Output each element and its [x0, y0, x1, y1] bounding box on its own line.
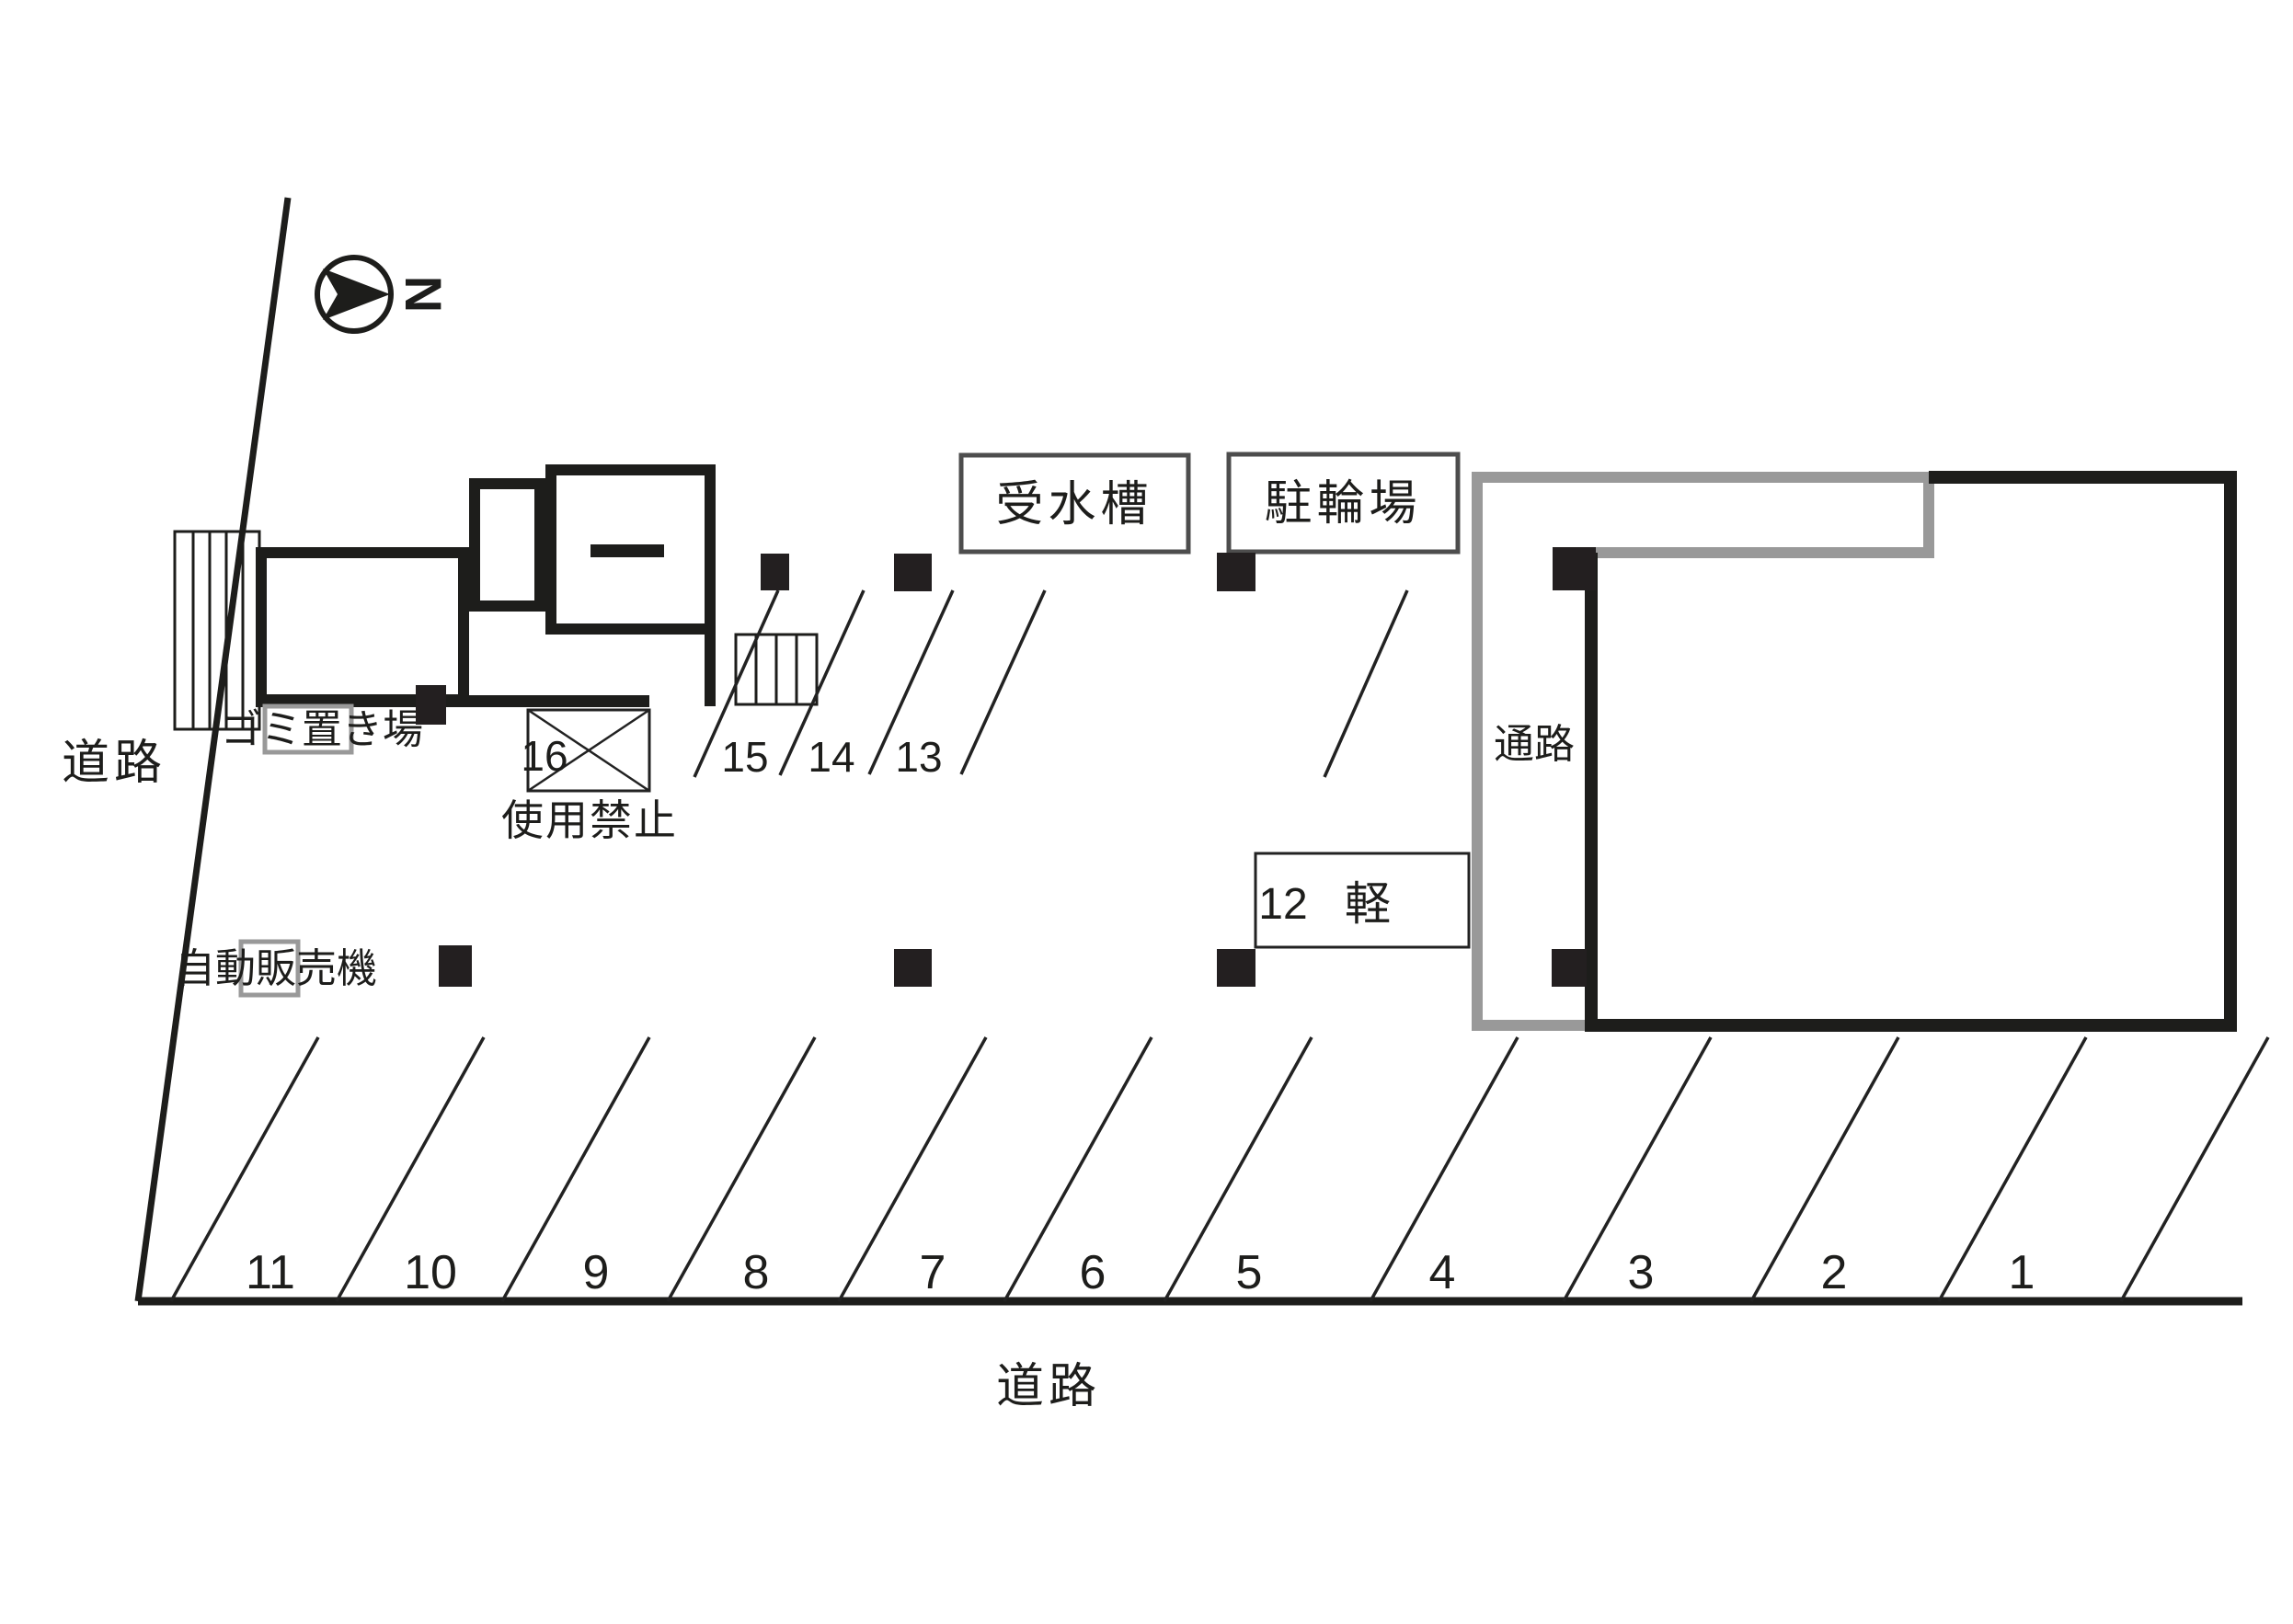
garbage-area-label: ゴミ置き場: [221, 707, 423, 752]
space-12-kei: 12 軽: [1255, 853, 1469, 947]
pillar: [1217, 949, 1255, 987]
kei-label: 軽: [1345, 878, 1391, 930]
parking-layout-diagram: 道路 道路 N ゴミ置き場 自動販売機: [0, 0, 2293, 1624]
water-tank: 受水槽: [961, 455, 1188, 552]
vending-machine-label: 自動販売機: [175, 946, 377, 991]
compass: N: [317, 257, 453, 331]
road-label-left: 道路: [62, 737, 166, 790]
space-15-number: 15: [721, 733, 768, 781]
parking-divider: [839, 1037, 986, 1301]
space-12-number: 12: [1258, 880, 1307, 929]
space-16-prohibited: 16 使用禁止: [501, 710, 678, 844]
parking-divider: [1004, 1037, 1152, 1301]
prohibited-label: 使用禁止: [501, 796, 678, 844]
bicycle-parking: 駐輪場: [1229, 454, 1458, 552]
pillar: [761, 554, 789, 590]
building-wing: [261, 553, 464, 700]
right-building-bottom-wall: [1585, 1019, 2237, 1032]
road-label-bottom: 道路: [996, 1360, 1101, 1413]
parking-divider: [171, 1037, 318, 1301]
middle-row-dividers: [694, 590, 1407, 777]
compass-north-label: N: [395, 276, 453, 313]
passage-label: 通路: [1494, 722, 1575, 767]
space-10-number: 10: [404, 1246, 457, 1299]
space-8-number: 8: [743, 1246, 770, 1299]
pillar: [1217, 553, 1255, 591]
building-tower-room: [475, 484, 540, 606]
space-5-number: 5: [1236, 1246, 1263, 1299]
pillar: [439, 945, 472, 987]
pillar: [1553, 547, 1596, 590]
parking-divider: [2121, 1037, 2268, 1301]
space-9-number: 9: [583, 1246, 610, 1299]
space-2-number: 2: [1821, 1246, 1848, 1299]
space-11-number: 11: [246, 1246, 295, 1299]
diagram-canvas: 道路 道路 N ゴミ置き場 自動販売機: [0, 0, 2293, 1624]
right-building-top-wall: [1929, 471, 2237, 484]
parking-divider: [1324, 590, 1407, 777]
left-building: [256, 470, 817, 707]
pillar: [1552, 949, 1587, 987]
space-14-number: 14: [808, 733, 854, 781]
parking-divider: [961, 590, 1045, 774]
space-13-number: 13: [895, 733, 942, 781]
space-1-number: 1: [2009, 1246, 2035, 1299]
right-building-right-wall: [2224, 471, 2237, 1032]
pillar: [894, 949, 932, 987]
water-tank-label: 受水槽: [995, 478, 1152, 532]
bottom-row-dividers: [171, 1037, 2268, 1301]
compass-arrow-icon: [323, 269, 390, 320]
space-6-number: 6: [1080, 1246, 1106, 1299]
bicycle-parking-label: 駐輪場: [1264, 477, 1421, 531]
space-3-number: 3: [1628, 1246, 1655, 1299]
space-16-number: 16: [521, 732, 568, 780]
right-building-left-wall: [1585, 553, 1598, 1032]
parking-divider: [668, 1037, 815, 1301]
building-wall-segment: [705, 635, 716, 706]
building-door-bar: [590, 544, 664, 557]
space-7-number: 7: [920, 1246, 946, 1299]
space-4-number: 4: [1429, 1246, 1456, 1299]
passage-gray-notch: [1477, 477, 1929, 553]
pillar: [416, 685, 446, 725]
small-striped-structure: [736, 635, 817, 704]
parking-divider: [502, 1037, 649, 1301]
pillar: [894, 554, 932, 591]
